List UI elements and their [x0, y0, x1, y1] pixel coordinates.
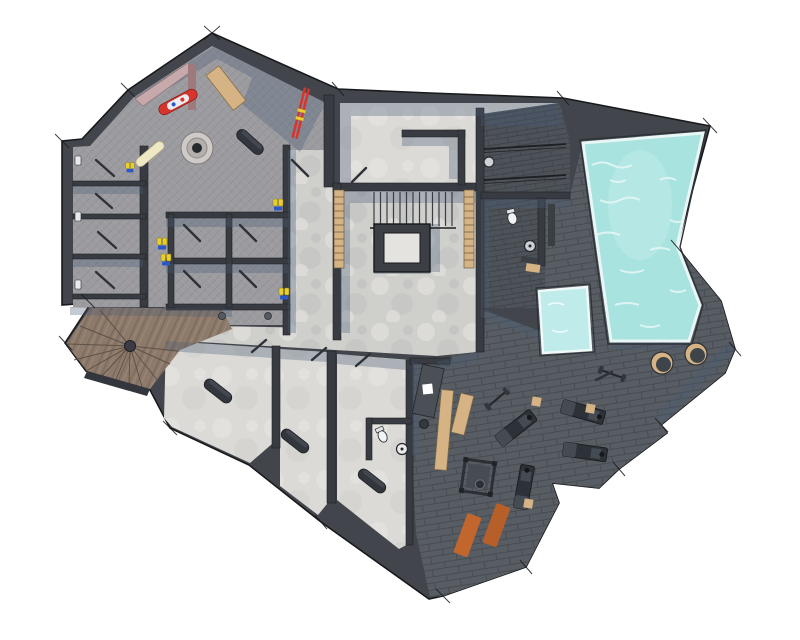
container	[265, 313, 272, 320]
plunge-pool	[536, 284, 595, 356]
wall-clock	[484, 157, 494, 167]
wall-room-c-east	[406, 360, 413, 545]
wall-bathroom-east	[538, 198, 545, 266]
deck-bench	[548, 204, 555, 246]
container	[219, 313, 226, 320]
wall-room-ab	[272, 346, 280, 448]
cellar-room-a-floor	[164, 341, 272, 463]
wall-stall-3	[73, 254, 146, 259]
wood-block	[531, 396, 541, 406]
wall-upper-room-inner-top	[402, 130, 465, 137]
wall-room-bc	[327, 351, 336, 503]
wall-ski-upper	[324, 95, 334, 187]
floor-plan	[0, 0, 800, 640]
wall-wc-west	[366, 418, 372, 460]
ladder-rack-right	[464, 190, 474, 268]
wall-stall-2	[73, 214, 146, 219]
wall-wc-north	[368, 418, 412, 424]
wall-upper-room-inner-right	[458, 130, 465, 185]
ladder-rack-left	[334, 190, 344, 268]
wood-block	[523, 498, 533, 508]
wood-block	[585, 403, 595, 413]
wall-stalls-east	[140, 146, 148, 307]
wall-cubicles-v2	[226, 214, 232, 308]
wall-stall-1	[73, 181, 146, 186]
floor-drain	[181, 132, 213, 164]
stairwell-void	[374, 224, 430, 272]
office-chair	[420, 420, 429, 429]
wall-vestibule-south	[481, 192, 570, 199]
plunge-water	[539, 287, 591, 353]
